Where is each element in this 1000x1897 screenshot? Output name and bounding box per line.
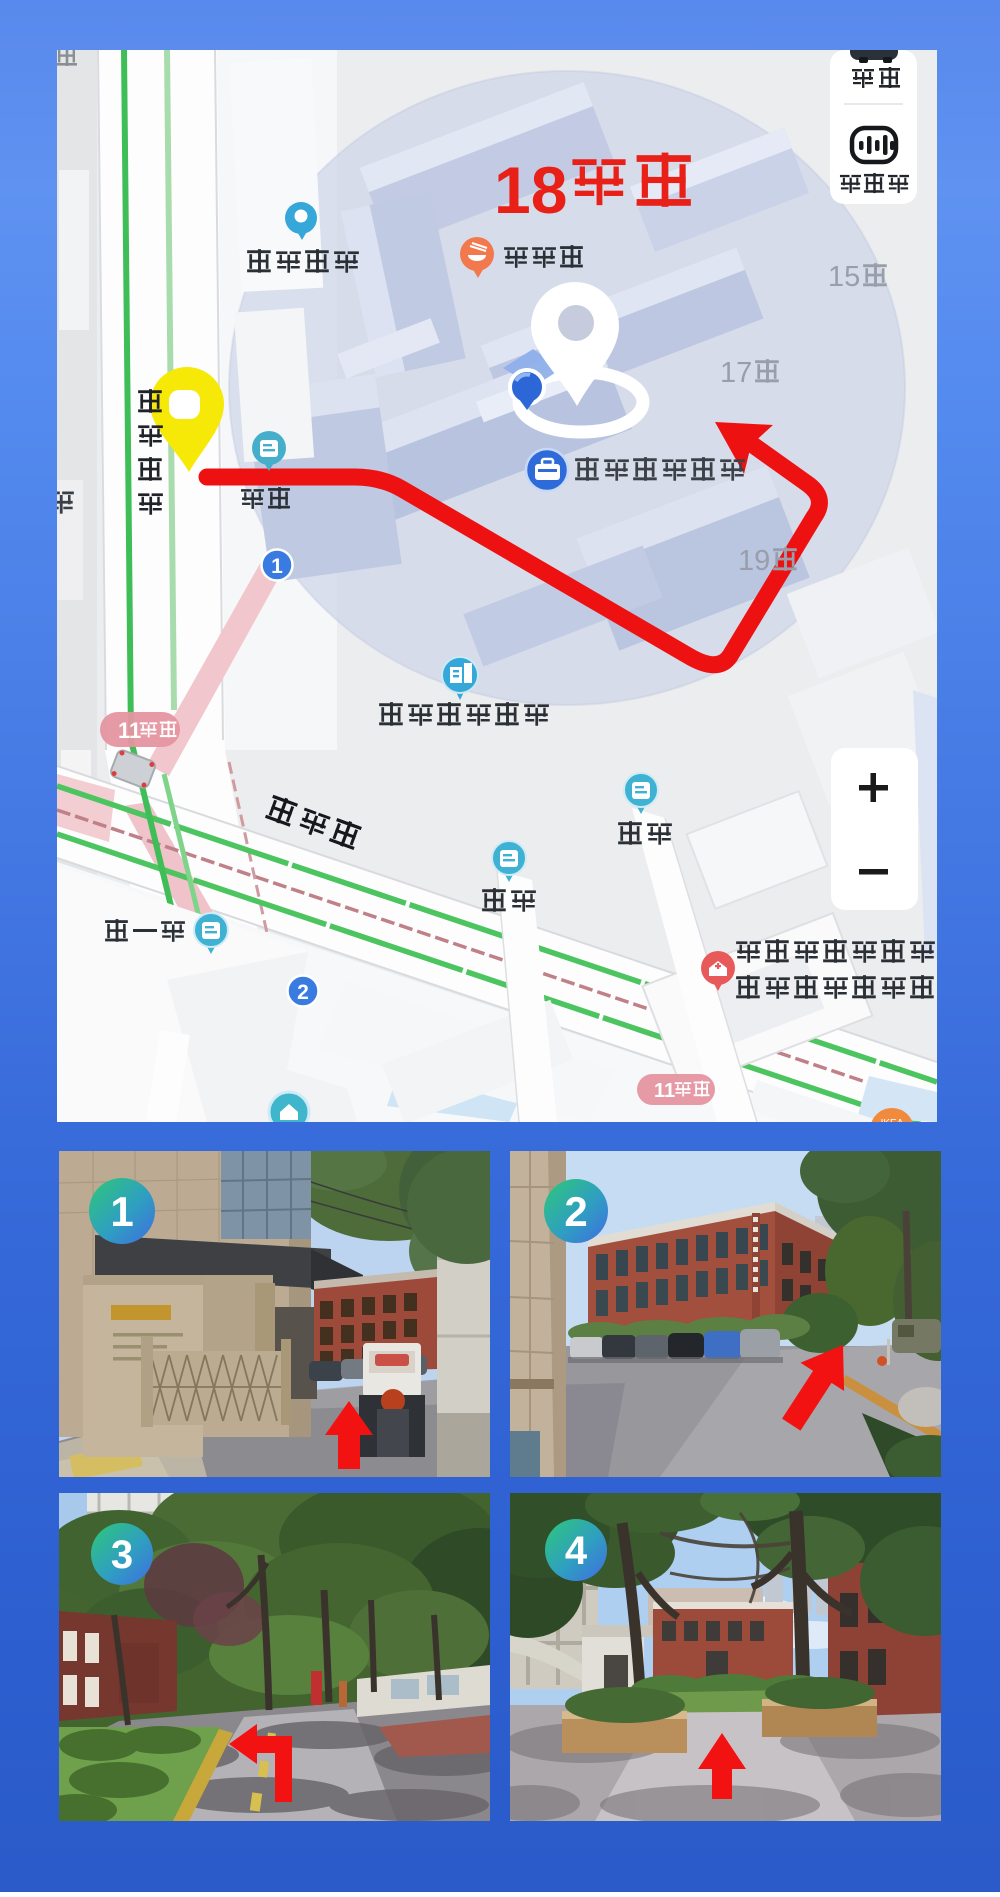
- svg-text:2: 2: [564, 1188, 587, 1235]
- svg-text:2: 2: [297, 981, 309, 1004]
- svg-text:4: 4: [565, 1529, 588, 1573]
- svg-text:18: 18: [494, 153, 567, 227]
- svg-text:11: 11: [118, 718, 141, 743]
- svg-text:15: 15: [828, 261, 860, 293]
- svg-text:1: 1: [110, 1188, 133, 1235]
- svg-text:IKEA: IKEA: [881, 1118, 904, 1122]
- svg-text:11: 11: [654, 1080, 675, 1102]
- svg-text:1: 1: [271, 555, 283, 578]
- svg-text:17: 17: [720, 357, 752, 389]
- svg-text:3: 3: [111, 1533, 133, 1577]
- svg-text:19: 19: [738, 545, 770, 577]
